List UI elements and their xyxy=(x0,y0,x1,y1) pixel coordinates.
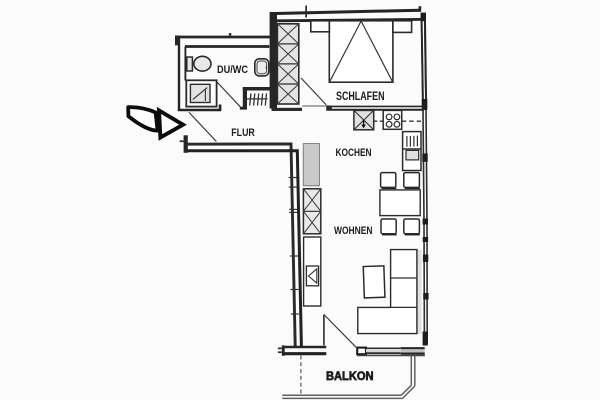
svg-text:SCHLAFEN: SCHLAFEN xyxy=(336,90,385,103)
svg-text:KOCHEN: KOCHEN xyxy=(336,147,372,159)
svg-text:FLUR: FLUR xyxy=(231,127,255,139)
svg-text:BALKON: BALKON xyxy=(326,369,374,383)
svg-text:DU/WC: DU/WC xyxy=(217,64,248,76)
svg-text:WOHNEN: WOHNEN xyxy=(334,225,373,237)
